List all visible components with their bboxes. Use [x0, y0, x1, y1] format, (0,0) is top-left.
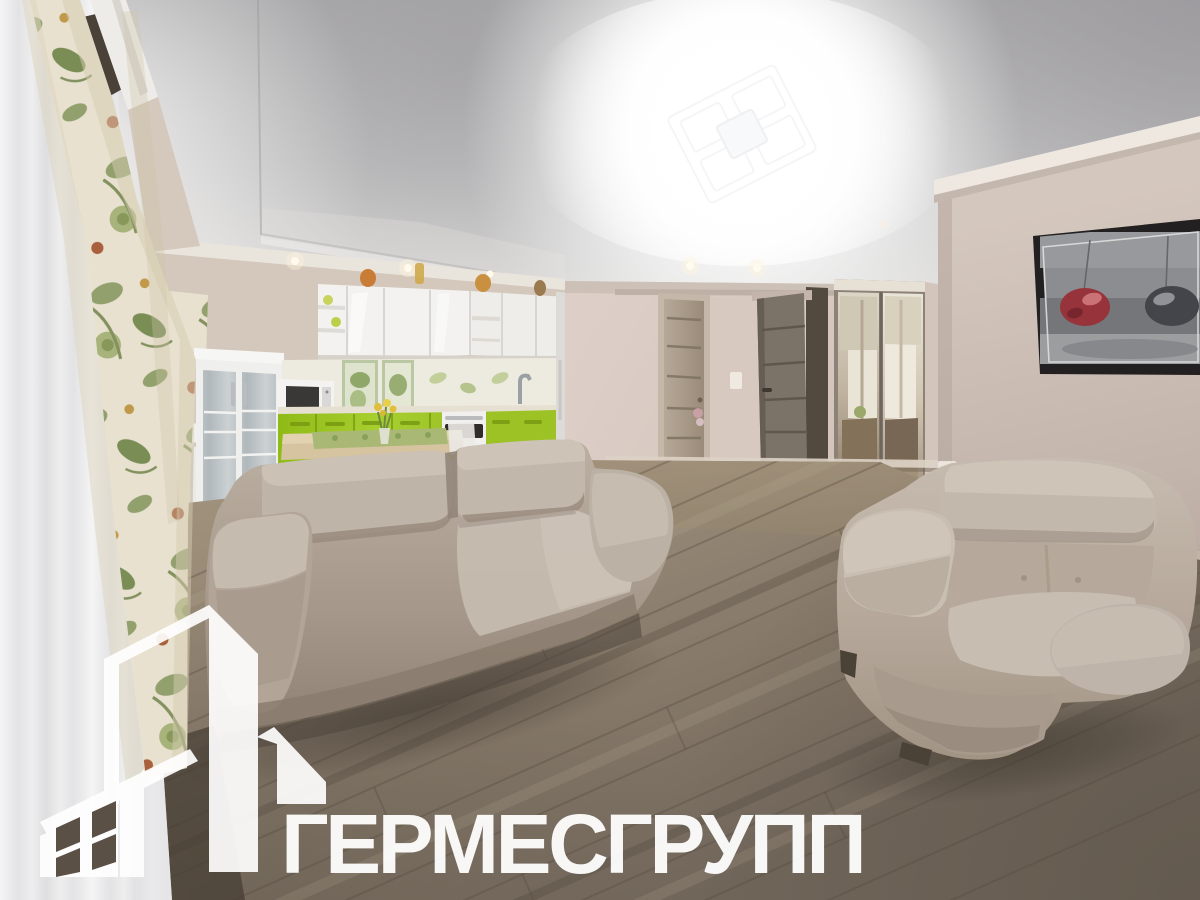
- svg-text:ГЕРМЕСГРУПП: ГЕРМЕСГРУПП: [281, 797, 863, 891]
